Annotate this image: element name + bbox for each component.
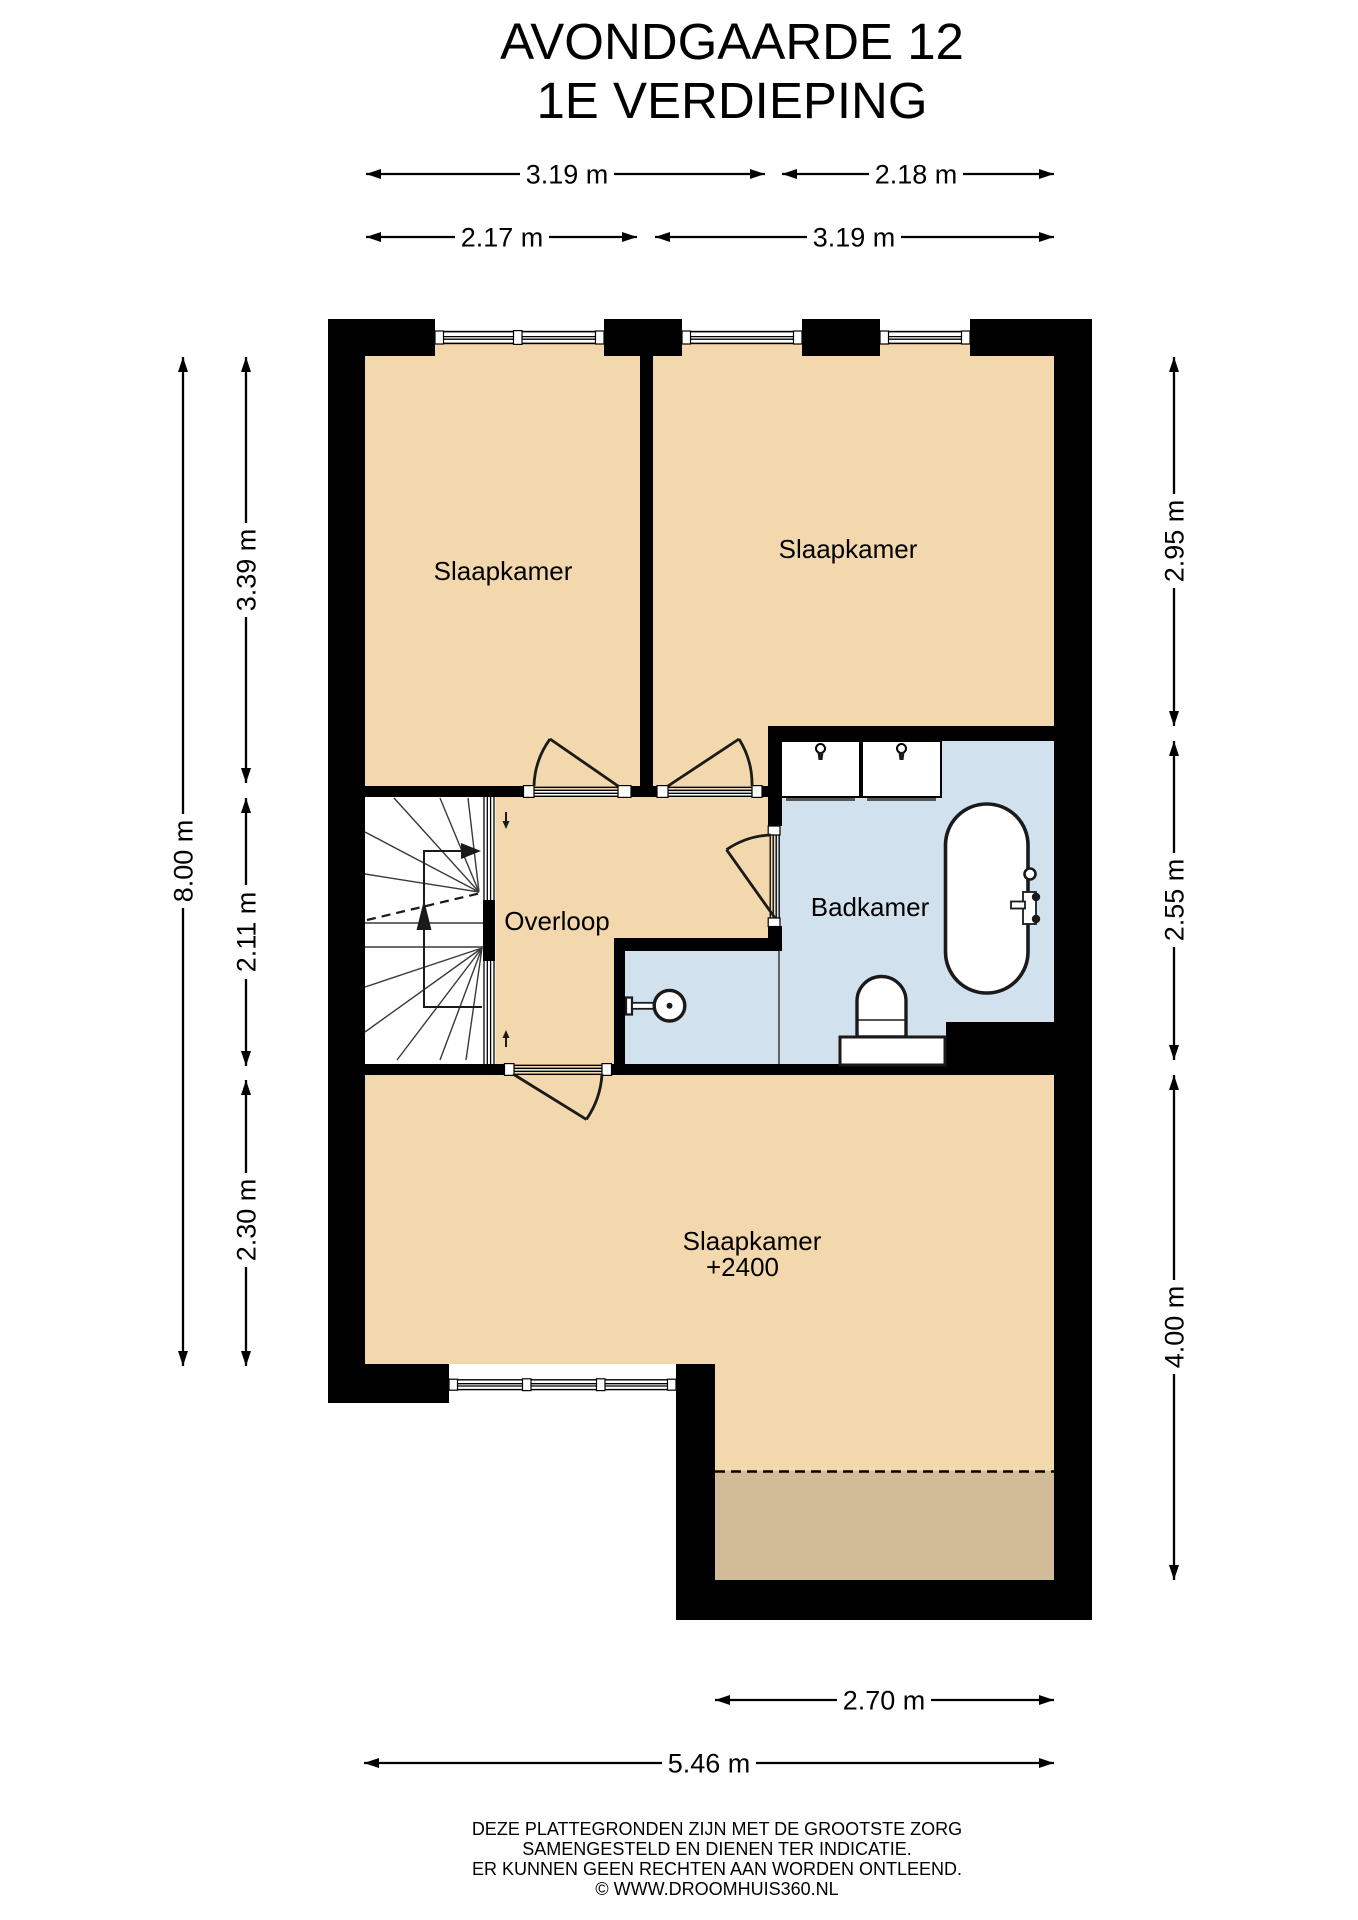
svg-text:3.19 m: 3.19 m	[813, 223, 896, 253]
svg-text:2.55 m: 2.55 m	[1160, 859, 1190, 942]
svg-text:DEZE PLATTEGRONDEN ZIJN MET DE: DEZE PLATTEGRONDEN ZIJN MET DE GROOTSTE …	[472, 1819, 962, 1839]
svg-text:8.00 m: 8.00 m	[169, 820, 199, 903]
svg-text:2.70 m: 2.70 m	[843, 1686, 926, 1716]
svg-text:SAMENGESTELD EN DIENEN TER IND: SAMENGESTELD EN DIENEN TER INDICATIE.	[522, 1839, 911, 1859]
svg-text:2.30 m: 2.30 m	[232, 1179, 262, 1262]
svg-text:4.00 m: 4.00 m	[1160, 1286, 1190, 1369]
svg-text:2.95 m: 2.95 m	[1160, 500, 1190, 583]
svg-text:Slaapkamer: Slaapkamer	[434, 556, 573, 586]
svg-text:AVONDGAARDE 12: AVONDGAARDE 12	[500, 13, 964, 70]
svg-text:1E VERDIEPING: 1E VERDIEPING	[536, 72, 927, 129]
svg-text:3.39 m: 3.39 m	[232, 529, 262, 612]
svg-text:2.17 m: 2.17 m	[461, 223, 544, 253]
svg-text:ER KUNNEN GEEN RECHTEN AAN WOR: ER KUNNEN GEEN RECHTEN AAN WORDEN ONTLEE…	[472, 1859, 962, 1879]
svg-text:+2400: +2400	[706, 1252, 779, 1282]
svg-text:3.19 m: 3.19 m	[526, 160, 609, 190]
svg-text:Overloop: Overloop	[504, 906, 610, 936]
svg-text:2.18 m: 2.18 m	[875, 160, 958, 190]
svg-text:2.11 m: 2.11 m	[232, 892, 262, 973]
svg-text:5.46 m: 5.46 m	[668, 1749, 751, 1779]
svg-text:Slaapkamer: Slaapkamer	[779, 534, 918, 564]
svg-text:Badkamer: Badkamer	[811, 892, 930, 922]
svg-text:© WWW.DROOMHUIS360.NL: © WWW.DROOMHUIS360.NL	[595, 1879, 838, 1899]
